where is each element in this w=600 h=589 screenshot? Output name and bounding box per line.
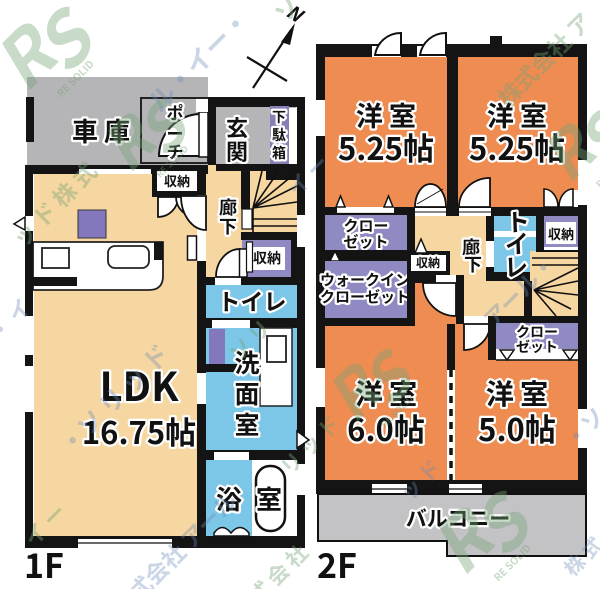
svg-text:5.25帖: 5.25帖 [338,124,434,169]
svg-text:2F: 2F [317,539,357,588]
svg-text:関: 関 [226,135,248,167]
svg-text:下: 下 [272,107,286,127]
svg-text:駄: 駄 [272,125,286,145]
svg-text:トイレ: トイレ [218,283,287,317]
svg-text:箱: 箱 [272,143,286,163]
svg-text:室: 室 [234,406,259,442]
svg-text:クローゼット: クローゼット [320,286,410,307]
svg-text:ゼット: ゼット [516,337,558,357]
svg-text:室: 室 [256,480,282,517]
svg-text:5.0帖: 5.0帖 [478,405,556,450]
svg-text:下: 下 [464,251,482,277]
svg-text:収納: 収納 [548,224,574,243]
svg-text:ゼット: ゼット [343,231,388,252]
svg-text:収納: 収納 [416,254,440,271]
svg-text:収納: 収納 [253,248,281,268]
svg-text:下: 下 [219,213,237,239]
